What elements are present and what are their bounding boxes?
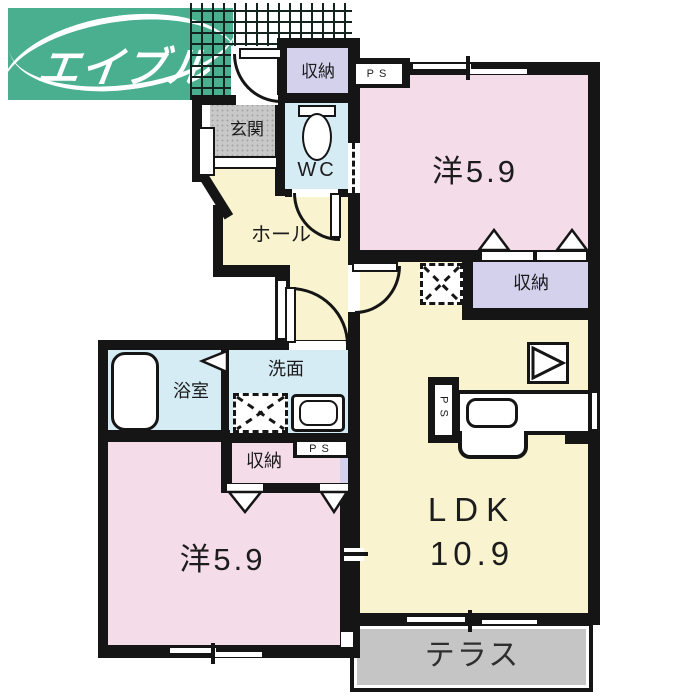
toilet-bowl bbox=[302, 113, 332, 161]
room-label-entrance: 玄関 bbox=[219, 121, 275, 138]
kitchen-counter-return bbox=[458, 431, 528, 459]
room-label-hall: ホール bbox=[226, 225, 336, 245]
wall bbox=[462, 308, 600, 320]
window-tick bbox=[211, 643, 215, 664]
ps-label-bottom: PS bbox=[297, 444, 346, 455]
vanity-sink-bowl bbox=[299, 400, 338, 426]
room-label-bedroom1: 洋5.9 bbox=[395, 156, 555, 187]
wall-joint-tick bbox=[340, 552, 368, 556]
kitchen-sink bbox=[466, 398, 518, 428]
window bbox=[467, 69, 527, 74]
wall bbox=[192, 95, 236, 105]
ps-label-kitchen: PS bbox=[438, 385, 449, 435]
window-tick bbox=[466, 56, 470, 80]
refrigerator-triangle-icon bbox=[527, 342, 569, 384]
window bbox=[214, 652, 262, 657]
washroom-door-leaf bbox=[285, 287, 296, 343]
room-label-bathroom: 浴室 bbox=[164, 382, 218, 400]
entrance-door-leaf bbox=[239, 48, 282, 59]
room-label-washroom: 洗面 bbox=[258, 360, 314, 378]
wall bbox=[98, 430, 108, 658]
entrance-step bbox=[212, 156, 278, 169]
wall-joint bbox=[341, 632, 353, 647]
shoe-cabinet bbox=[198, 127, 215, 176]
ldk-door-leaf bbox=[352, 262, 398, 272]
closet-door-triangle-icon bbox=[228, 491, 262, 513]
closet-opening bbox=[537, 252, 586, 260]
wall bbox=[213, 205, 223, 268]
room-label-storage-mid: 収納 bbox=[502, 274, 560, 292]
closet-door-triangle-icon bbox=[478, 229, 510, 252]
washer-space-x-icon bbox=[233, 393, 288, 433]
closet-door-triangle-icon bbox=[320, 491, 348, 513]
closet-opening bbox=[482, 252, 533, 260]
room-label-wc: WC bbox=[291, 160, 343, 180]
ps-label-top: PS bbox=[356, 69, 402, 80]
room-label-terrace: テラス bbox=[390, 641, 555, 671]
dashed-opening-line bbox=[352, 143, 355, 193]
hatch-space-x-icon bbox=[420, 263, 463, 305]
bath-folding-door-icon bbox=[200, 349, 230, 375]
window bbox=[413, 64, 471, 69]
window bbox=[482, 620, 537, 624]
outside-notch bbox=[200, 214, 213, 267]
window bbox=[170, 648, 216, 653]
bathtub bbox=[111, 352, 159, 431]
wall bbox=[98, 340, 108, 440]
room-label-storage-top: 収納 bbox=[291, 63, 345, 80]
room-label-bedroom2: 洋5.9 bbox=[140, 544, 305, 575]
room-label-storage-bottom: 収納 bbox=[236, 452, 292, 470]
room-label-ldk: LDK bbox=[388, 493, 556, 526]
window-tick bbox=[468, 610, 472, 632]
wall bbox=[348, 613, 600, 625]
wall bbox=[275, 95, 285, 196]
wall bbox=[98, 430, 230, 442]
closet-door-triangle-icon bbox=[556, 229, 588, 252]
floorplan-canvas: エイブル bbox=[0, 0, 700, 700]
window bbox=[407, 617, 465, 622]
room-label-ldk-size: 10.9 bbox=[388, 537, 556, 570]
wall bbox=[588, 62, 600, 625]
